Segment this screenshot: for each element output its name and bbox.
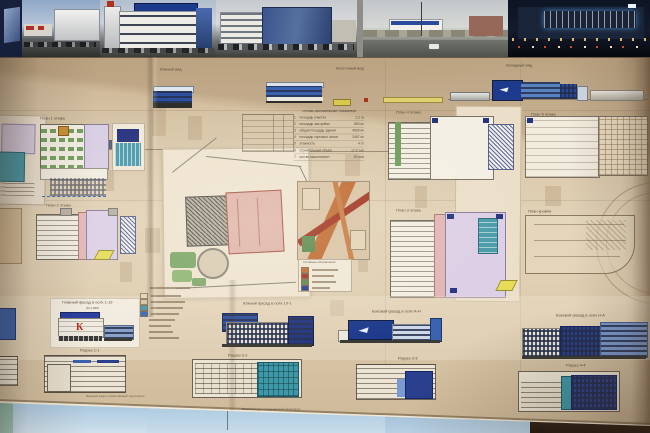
legend-row xyxy=(140,335,200,341)
legend-line xyxy=(312,281,336,283)
yellow-wedge xyxy=(495,280,517,291)
parked-cars-row xyxy=(218,44,354,50)
context-buildings xyxy=(590,90,644,101)
board-patch xyxy=(145,228,160,253)
glowing-glass-band xyxy=(544,11,636,28)
glass-facade xyxy=(153,91,192,103)
bright-sign xyxy=(628,4,636,8)
view-label-west: Западный вид xyxy=(506,64,532,69)
stair-marker xyxy=(527,118,533,123)
top-photo-wide-street xyxy=(363,0,508,57)
green-strip xyxy=(395,122,401,166)
block-shape xyxy=(302,188,320,210)
caption-1: Видовой кадр с прилегающей территории xyxy=(86,395,144,398)
corner-glass xyxy=(196,8,212,48)
stair-marker xyxy=(432,118,438,123)
top-photo-street-day xyxy=(22,0,100,57)
situation-map xyxy=(297,181,370,260)
base-line xyxy=(522,356,646,359)
base-line xyxy=(340,340,440,343)
e1-main-elevation: К xyxy=(56,312,134,342)
stair-marker xyxy=(447,214,454,219)
main-facade xyxy=(119,11,203,49)
east-elevation-building xyxy=(266,82,322,103)
stepped-left-part xyxy=(47,364,71,392)
parking-stripes xyxy=(390,220,436,298)
blue-detail xyxy=(73,360,91,363)
legend-line xyxy=(149,325,171,327)
legend-title-line xyxy=(150,287,190,289)
legend-swatch xyxy=(140,311,148,317)
light-blue-fill xyxy=(397,379,405,397)
plan4-floor-plan xyxy=(385,116,515,180)
cutoff-section-fragment xyxy=(0,356,18,386)
stair-core-strip xyxy=(120,216,136,254)
map-legend-row xyxy=(301,285,349,291)
parking-stripes xyxy=(36,214,80,260)
table-divider xyxy=(273,115,274,151)
s1-label: Разрез 1-1 xyxy=(80,349,99,354)
dark-glass-panel xyxy=(348,320,394,340)
main-hall xyxy=(525,116,600,178)
navy-block xyxy=(117,129,139,142)
atrium-glass-teal xyxy=(257,362,299,397)
red-kiosk xyxy=(364,98,368,102)
block-shape xyxy=(350,230,366,250)
plan1-label: План 1 этажа xyxy=(40,117,65,122)
top-photo-night-render xyxy=(0,0,22,57)
section-1-1 xyxy=(44,355,126,393)
blue-fill xyxy=(405,371,433,399)
existing-building-hatched xyxy=(185,195,231,247)
legend-line xyxy=(312,275,334,277)
plan-lines xyxy=(0,182,34,197)
tep-row-value: 1,2 га xyxy=(348,116,363,119)
stair-marker xyxy=(450,288,457,293)
symbols-legend xyxy=(140,287,200,345)
mid-block xyxy=(560,84,577,99)
stair-marker xyxy=(496,214,503,219)
inner-wall xyxy=(237,199,241,247)
blue-dashed-boundary xyxy=(42,196,106,197)
dark-center-band xyxy=(560,326,602,358)
stair-marker xyxy=(483,118,489,123)
tep-row-name: площадь застройки xyxy=(300,122,349,125)
glass-facade xyxy=(266,86,322,97)
e2-label: Южный фасад в осях 19-1 xyxy=(243,302,292,307)
tep-row-value: 650 м² xyxy=(348,122,363,125)
teal-rooms xyxy=(478,218,498,254)
s3-label: Разрез 3-3 xyxy=(398,357,417,362)
legend-line xyxy=(149,337,179,339)
street-lights-row xyxy=(512,38,646,41)
area-schedule-table xyxy=(242,114,294,152)
amber-block xyxy=(58,126,69,136)
board-patch xyxy=(120,262,132,282)
dark-glass-block xyxy=(492,80,523,101)
light-glass-block xyxy=(521,82,560,99)
situation-map-legend: Условные обозначения xyxy=(298,259,352,292)
airplane-motif xyxy=(358,325,368,333)
photo-of-architecture-board: Южный вид Восточный вид Западный вид xyxy=(0,0,650,433)
blue-band-sign xyxy=(391,21,439,25)
cars-row xyxy=(102,48,214,53)
tep-row-value: 4900 м² xyxy=(348,129,363,132)
top-photo-night xyxy=(508,0,650,57)
paved-area xyxy=(50,178,106,196)
board-patch xyxy=(545,186,561,206)
roof-line xyxy=(534,256,620,257)
speckled-zone xyxy=(488,124,514,170)
small-plan-sheet xyxy=(112,123,145,171)
car-lights xyxy=(518,46,638,48)
red-sign xyxy=(26,26,34,30)
light-glass-tall xyxy=(600,322,648,358)
roof-hatch xyxy=(586,220,626,250)
right-block xyxy=(577,86,588,101)
e1-scale: (М 1:200) xyxy=(86,307,99,310)
small-buildings xyxy=(450,92,490,101)
teal-zone xyxy=(115,143,141,166)
base xyxy=(153,103,192,108)
tep-row-value: 17,9 т.м³ xyxy=(348,149,363,152)
legend-line xyxy=(312,287,330,289)
section-4-4 xyxy=(518,371,620,412)
tep-row-name: этажность xyxy=(300,142,349,145)
car xyxy=(429,44,439,49)
table-divider xyxy=(283,115,284,151)
roof-plan-label: План кровли xyxy=(528,210,551,215)
top-photo-main-building xyxy=(100,0,216,57)
logo-letter-k: К xyxy=(76,322,83,333)
stair-block xyxy=(60,208,72,216)
tep-row-name: кол-во машиномест xyxy=(300,155,349,158)
tep-row-value: 2467 м² xyxy=(348,136,363,139)
teal-zone xyxy=(0,152,25,182)
legend-line xyxy=(149,319,175,321)
red-brick-building xyxy=(469,16,503,36)
main-hall xyxy=(430,116,494,180)
e4-label: Боковой фасад в осях Н-А xyxy=(556,314,605,319)
roof-plan xyxy=(525,215,635,274)
floor-slabs xyxy=(195,363,257,394)
airplane-motif xyxy=(499,85,508,92)
projected-building-pink xyxy=(225,190,284,255)
landscaping-green xyxy=(192,278,206,286)
top-photo-parking-view xyxy=(216,0,357,57)
view-label-south: Южный вид xyxy=(160,68,182,73)
plan2-floor-plan xyxy=(33,208,118,260)
e3-elevation xyxy=(338,318,442,348)
site-green xyxy=(302,236,315,252)
map-legend-title: Условные обозначения xyxy=(303,261,335,264)
legend-line xyxy=(312,269,338,271)
cutoff-elevation-fragment xyxy=(0,308,16,340)
plan1-floor-plan xyxy=(38,122,108,200)
cutoff-tan-plan xyxy=(0,208,22,264)
legend-line xyxy=(151,301,185,303)
building-body: К xyxy=(58,318,104,338)
base xyxy=(266,101,322,103)
tep-table: Технико-экономические показатели 1площад… xyxy=(294,110,364,170)
light-pole xyxy=(421,2,422,36)
legend-line xyxy=(151,295,181,297)
bus-shape xyxy=(333,99,351,106)
board-patch xyxy=(415,186,427,208)
tep-row: 1площадь участка1,2 га xyxy=(294,114,364,121)
section-2-2 xyxy=(192,359,302,398)
e4-elevation xyxy=(520,322,648,360)
plan3-floor-plan xyxy=(388,212,516,298)
e3-label: Боковой фасад в осях А-Н xyxy=(372,310,421,315)
lavender-zone xyxy=(1,124,36,155)
tep-row-name: общая площадь здания xyxy=(300,129,349,132)
tep-row: 7кол-во машиномест90 м/м xyxy=(294,154,364,161)
view-label-east: Восточный вид xyxy=(336,67,364,72)
stair-block xyxy=(108,208,118,216)
south-elevation-building xyxy=(153,86,192,108)
landscaping-green xyxy=(172,270,192,282)
right-tower xyxy=(430,318,442,342)
legend-swatch xyxy=(301,285,309,291)
s2-label: Разрез 2-2 xyxy=(228,354,247,359)
inner-wall xyxy=(257,198,261,246)
circular-ramp xyxy=(197,248,229,279)
west-elevation-buildings xyxy=(448,78,648,100)
base-line xyxy=(222,344,312,347)
building-base xyxy=(58,336,102,341)
render-building-shape xyxy=(4,7,20,43)
tep-row-name: площадь участка xyxy=(300,116,349,119)
e1-label: Главный фасад в осях 1-19 xyxy=(62,301,112,306)
plan5-floor-plan xyxy=(523,116,648,178)
white-wing xyxy=(220,12,264,46)
tep-row-value: 90 м/м xyxy=(348,155,363,158)
tep-row-name: площадь торговых залов xyxy=(300,136,349,139)
hatched-rooms xyxy=(598,116,648,176)
blue-block xyxy=(571,375,617,410)
top-photo-strip xyxy=(0,0,650,57)
yellow-strip-building xyxy=(383,97,443,103)
tep-row: 6строительный объём17,9 т.м³ xyxy=(294,147,364,154)
white-building xyxy=(54,9,100,41)
blue-detail xyxy=(97,360,119,363)
legend-line xyxy=(151,307,183,309)
red-sign xyxy=(38,26,44,30)
tep-row-value: 4 эт xyxy=(348,142,363,145)
white-window-block xyxy=(522,328,562,358)
side-base xyxy=(104,338,132,341)
e2-elevation xyxy=(216,313,314,347)
legend-line xyxy=(151,313,179,315)
cars-row xyxy=(24,42,96,47)
dark-right-block xyxy=(288,316,314,346)
lavender-hall xyxy=(84,124,109,170)
context-buildings xyxy=(332,20,356,42)
tep-title: Технико-экономические показатели xyxy=(294,110,364,113)
landscaping-green xyxy=(170,252,196,268)
plan4-label: План 4 этажа xyxy=(396,111,421,116)
tep-row-name: строительный объём xyxy=(300,149,349,152)
blue-glass-block xyxy=(262,7,332,47)
board-patch xyxy=(188,116,202,140)
s4-label: Разрез 4-4 xyxy=(566,364,585,369)
section-3-3 xyxy=(356,364,436,400)
legend-line xyxy=(149,331,173,333)
red-clock-sign xyxy=(107,1,114,7)
tep-row: 4площадь торговых залов2467 м² xyxy=(294,134,364,141)
